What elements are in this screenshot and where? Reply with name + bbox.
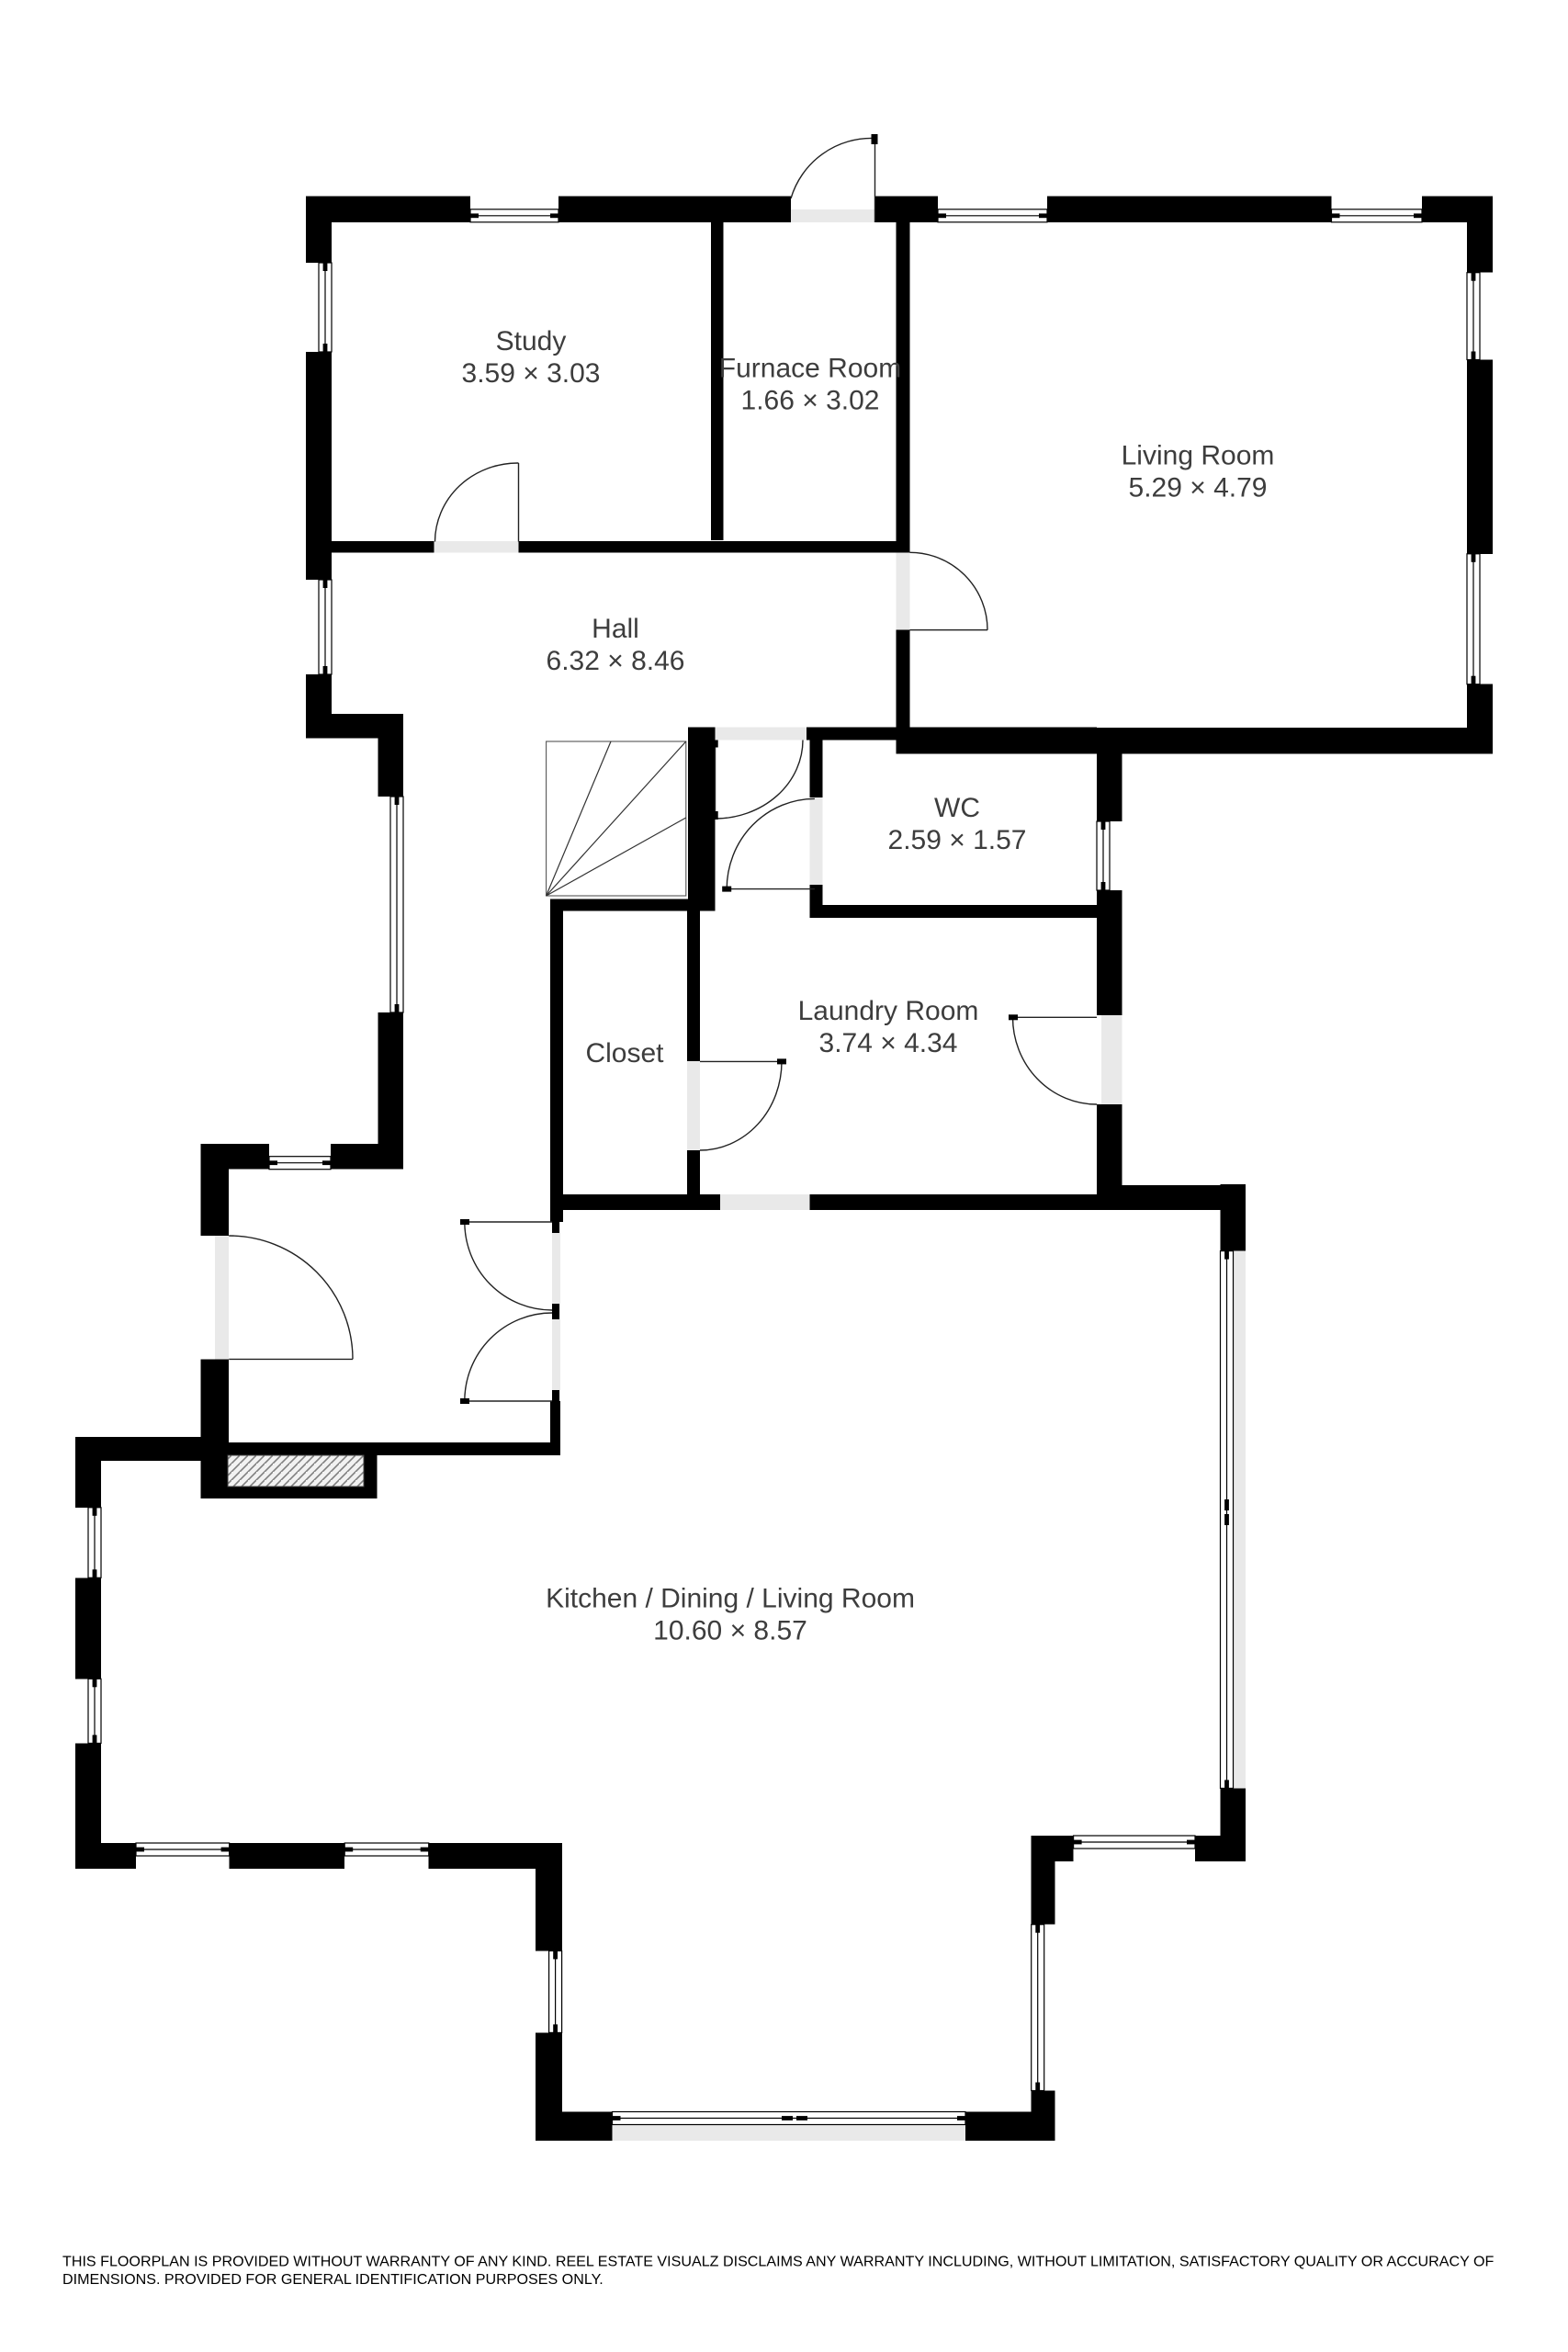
svg-text:2.59 × 1.57: 2.59 × 1.57 bbox=[888, 825, 1027, 855]
svg-text:Furnace Room: Furnace Room bbox=[719, 354, 901, 384]
svg-text:6.32 × 8.46: 6.32 × 8.46 bbox=[547, 646, 685, 676]
svg-text:1.66 × 3.02: 1.66 × 3.02 bbox=[741, 386, 880, 416]
svg-text:DIMENSIONS. PROVIDED FOR GENER: DIMENSIONS. PROVIDED FOR GENERAL IDENTIF… bbox=[62, 2271, 604, 2288]
svg-text:THIS FLOORPLAN IS PROVIDED WIT: THIS FLOORPLAN IS PROVIDED WITHOUT WARRA… bbox=[62, 2254, 1495, 2270]
svg-text:WC: WC bbox=[934, 793, 980, 823]
svg-text:Hall: Hall bbox=[592, 614, 639, 644]
svg-text:10.60 × 8.57: 10.60 × 8.57 bbox=[653, 1616, 807, 1646]
svg-text:Laundry Room: Laundry Room bbox=[798, 996, 979, 1026]
svg-text:3.74 × 4.34: 3.74 × 4.34 bbox=[819, 1028, 958, 1058]
svg-text:3.59 × 3.03: 3.59 × 3.03 bbox=[462, 358, 601, 389]
svg-text:Closet: Closet bbox=[585, 1038, 664, 1069]
svg-text:5.29 × 4.79: 5.29 × 4.79 bbox=[1129, 473, 1268, 503]
svg-text:Study: Study bbox=[496, 326, 567, 356]
svg-text:Living Room: Living Room bbox=[1122, 441, 1275, 471]
svg-text:Kitchen / Dining / Living Ro: Kitchen / Dining / Living Room bbox=[546, 1584, 915, 1614]
